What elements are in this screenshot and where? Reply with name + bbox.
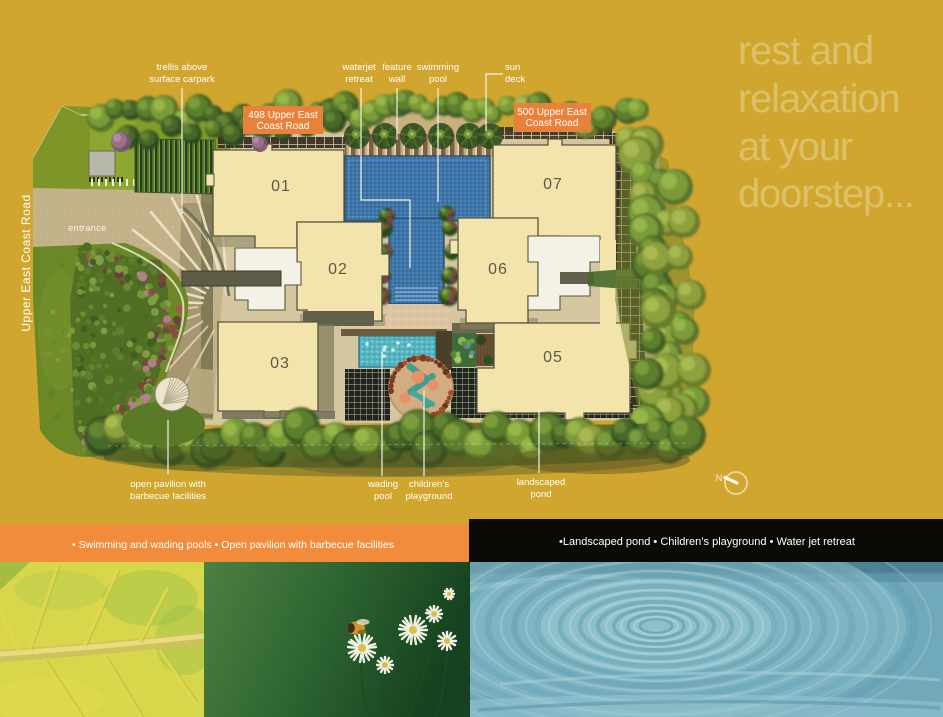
svg-text:trellis above: trellis above — [157, 62, 208, 73]
svg-text:deck: deck — [505, 74, 525, 85]
svg-text:pond: pond — [530, 489, 551, 500]
svg-text:02: 02 — [328, 261, 348, 278]
svg-text:waterjet: waterjet — [341, 62, 376, 73]
svg-text:swimming: swimming — [417, 62, 459, 73]
svg-text:at your: at your — [738, 125, 853, 169]
svg-text:pool: pool — [374, 491, 392, 502]
svg-text:landscaped: landscaped — [517, 477, 566, 488]
svg-text:03: 03 — [270, 355, 290, 372]
svg-text:06: 06 — [488, 261, 508, 278]
svg-text:N: N — [716, 473, 723, 484]
svg-text:sun: sun — [505, 62, 520, 73]
svg-text:Coast Road: Coast Road — [526, 118, 579, 129]
svg-text:500 Upper East: 500 Upper East — [517, 107, 587, 118]
svg-text:open pavilion with: open pavilion with — [130, 479, 206, 490]
svg-text:children’s: children’s — [409, 479, 449, 490]
svg-text:feature: feature — [382, 62, 412, 73]
svg-text:Upper East Coast Road: Upper East Coast Road — [19, 194, 33, 331]
svg-text:pool: pool — [429, 74, 447, 85]
svg-text:doorstep...: doorstep... — [738, 172, 914, 216]
svg-text:retreat: retreat — [345, 74, 373, 85]
svg-text:barbecue facilities: barbecue facilities — [130, 491, 206, 502]
svg-text:498 Upper East: 498 Upper East — [248, 110, 318, 121]
svg-text:relaxation: relaxation — [738, 77, 899, 121]
svg-text:• Swimming and wading pools •: • Swimming and wading pools • Open pavil… — [72, 539, 394, 551]
svg-text:wall: wall — [388, 74, 405, 85]
svg-text:surface carpark: surface carpark — [149, 74, 215, 85]
svg-text:•Landscaped pond • Children’s: •Landscaped pond • Children’s playground… — [559, 536, 855, 548]
svg-text:07: 07 — [543, 176, 563, 193]
svg-text:wading: wading — [367, 479, 398, 490]
svg-text:Coast Road: Coast Road — [257, 121, 310, 132]
svg-text:entrance: entrance — [68, 223, 107, 234]
svg-text:playground: playground — [405, 491, 452, 502]
svg-text:rest and: rest and — [738, 29, 873, 73]
svg-text:05: 05 — [543, 349, 563, 366]
svg-text:01: 01 — [271, 178, 291, 195]
